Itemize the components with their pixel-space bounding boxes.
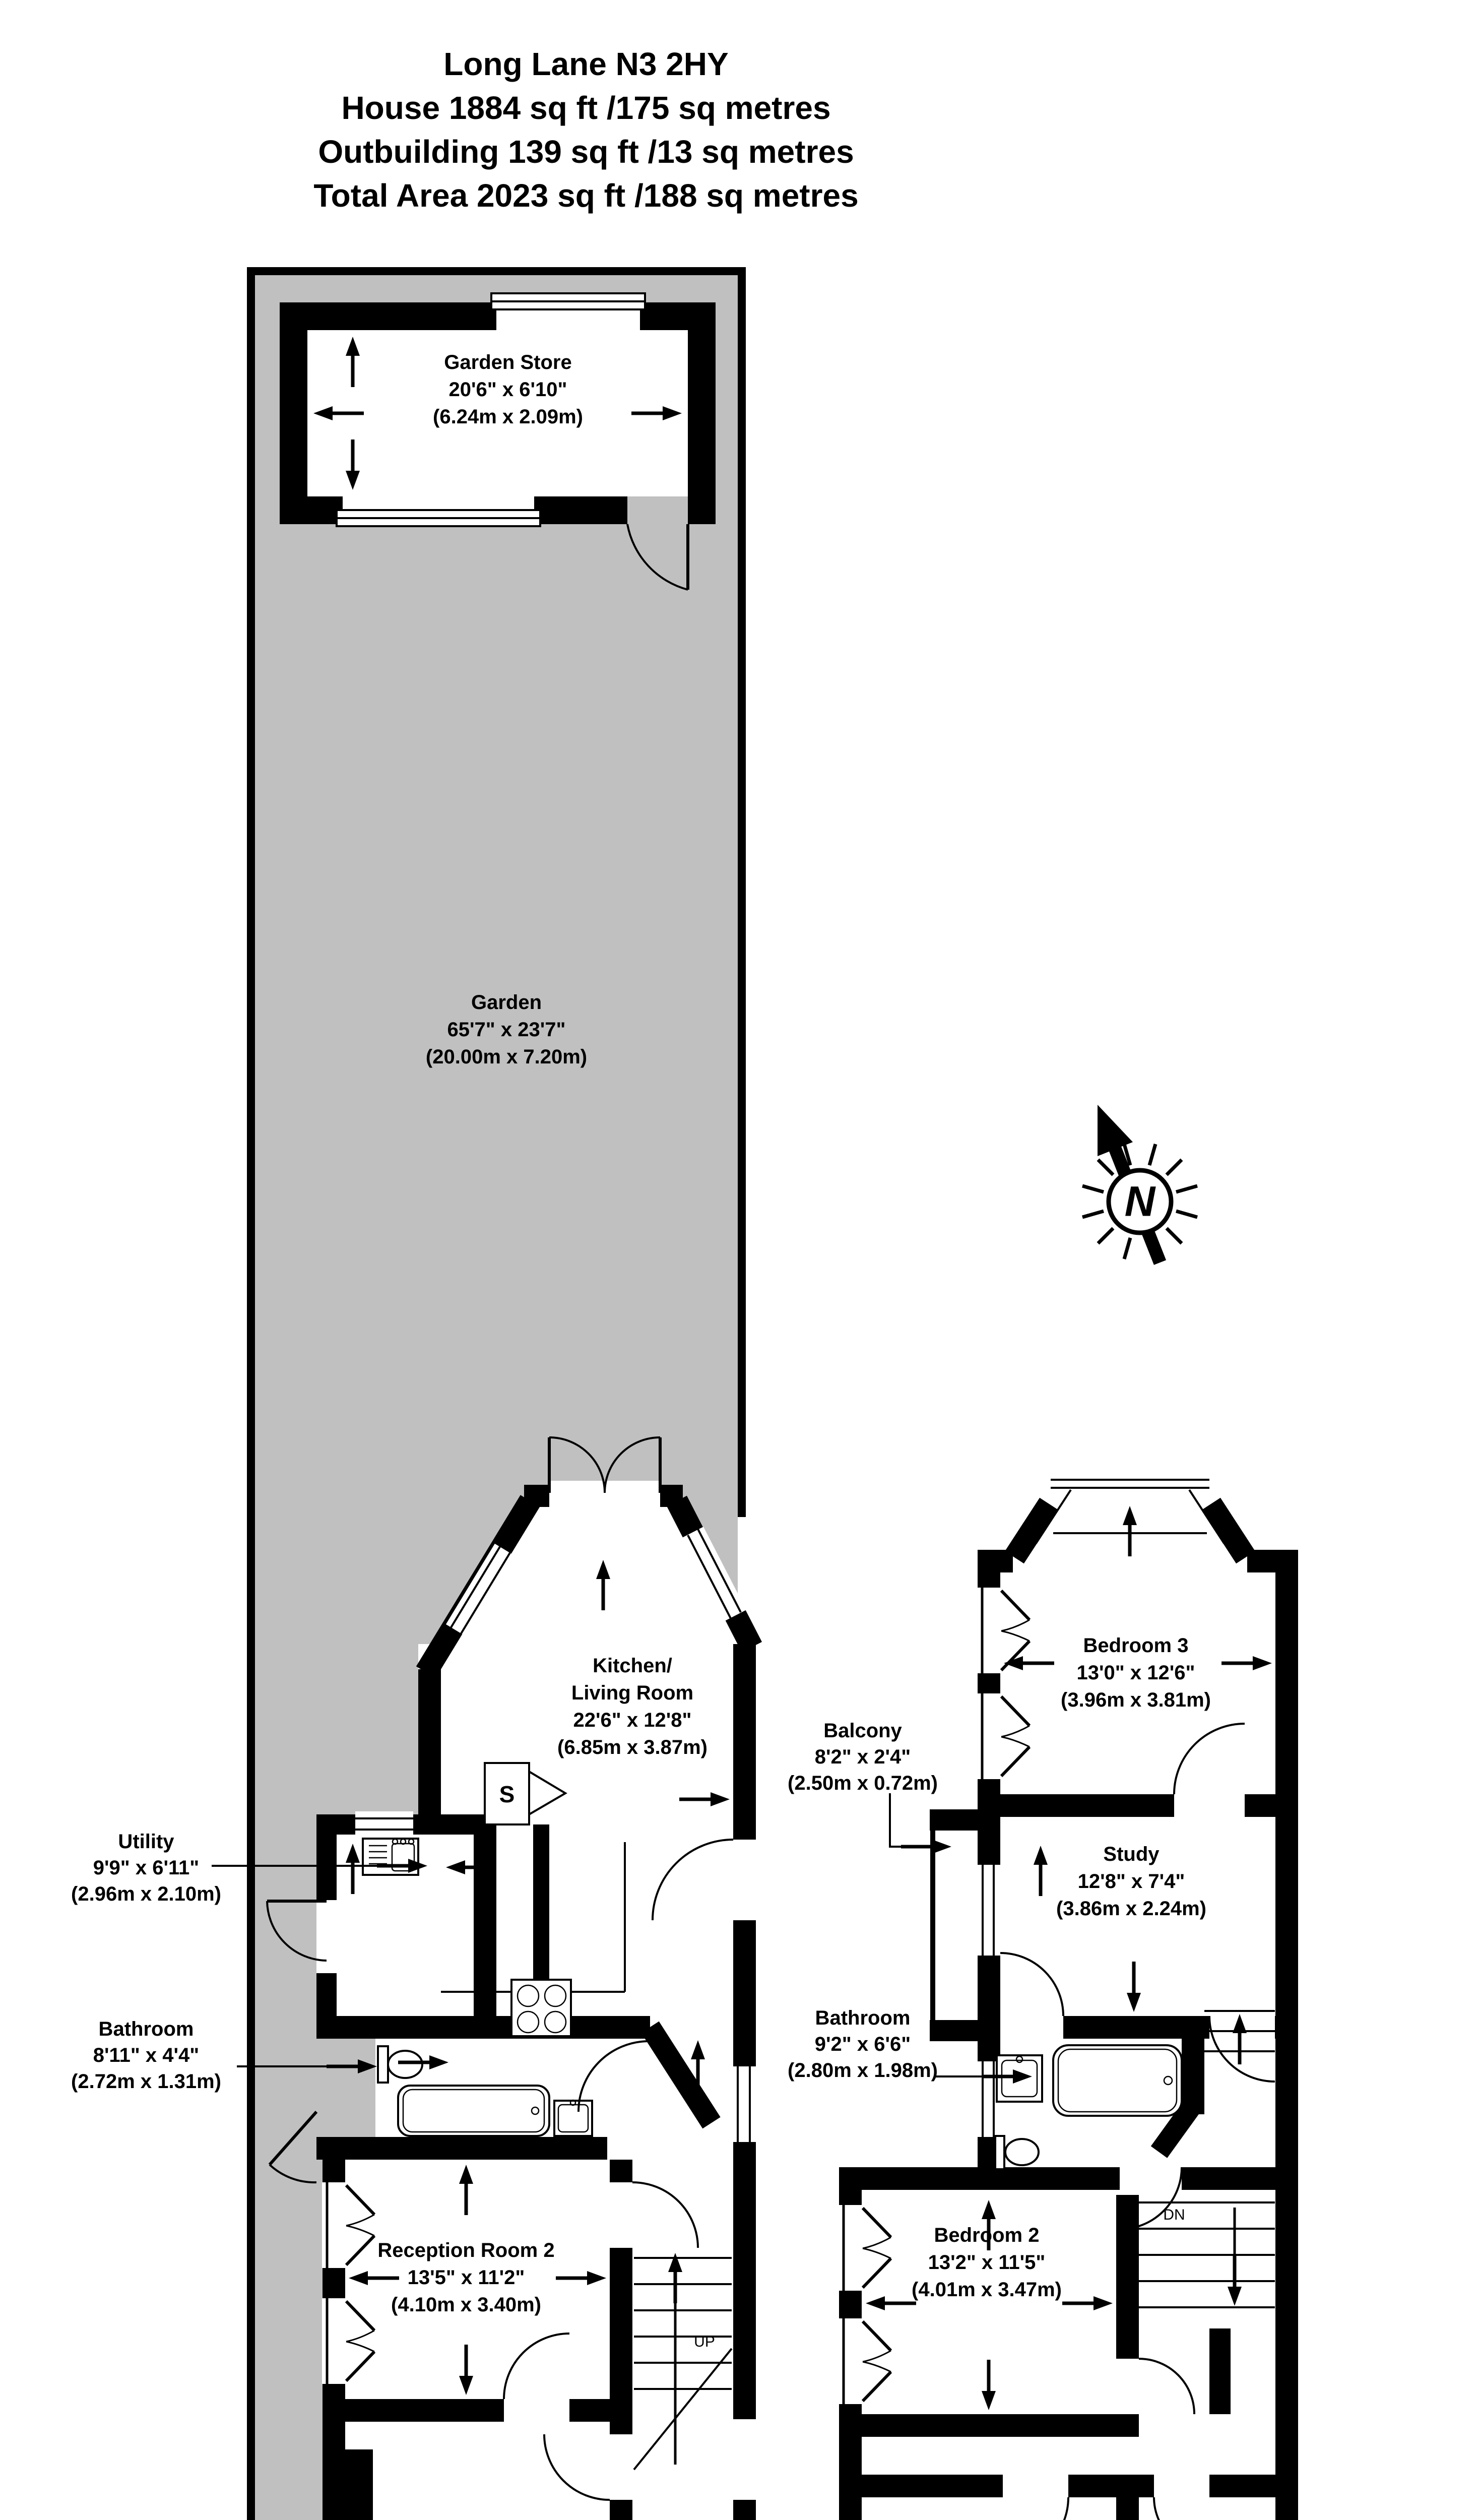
store-cupboard-label: S [499, 1781, 515, 1808]
title-total-area: Total Area 2023 sq ft /188 sq metres [313, 174, 858, 218]
compass-north-label: N [1125, 1177, 1155, 1226]
room-label-garden-store: Garden Store 20'6" x 6'10" (6.24m x 2.09… [433, 349, 583, 430]
stairs-up-label: UP [694, 2334, 715, 2351]
stairs-down-label: DN [1163, 2207, 1185, 2224]
floorplan-drawing [0, 0, 1479, 2520]
title-house-area: House 1884 sq ft /175 sq metres [313, 86, 858, 130]
title-outbuilding-area: Outbuilding 139 sq ft /13 sq metres [313, 130, 858, 174]
room-label-bedroom-2: Bedroom 2 13'2" x 11'5" (4.01m x 3.47m) [912, 2222, 1062, 2303]
room-label-reception-2: Reception Room 2 13'5" x 11'2" (4.10m x … [377, 2237, 554, 2318]
room-label-ff-bathroom: Bathroom 9'2" x 6'6" (2.80m x 1.98m) [788, 2005, 938, 2084]
room-label-utility: Utility 9'9" x 6'11" (2.96m x 2.10m) [71, 1829, 221, 1907]
floorplan-page: Long Lane N3 2HY House 1884 sq ft /175 s… [0, 0, 1479, 2520]
room-label-kitchen-living: Kitchen/ Living Room 22'6" x 12'8" (6.85… [557, 1652, 708, 1761]
room-label-gf-bathroom: Bathroom 8'11" x 4'4" (2.72m x 1.31m) [71, 2016, 221, 2095]
title-address: Long Lane N3 2HY [313, 42, 858, 86]
room-label-balcony: Balcony 8'2" x 2'4" (2.50m x 0.72m) [788, 1718, 938, 1796]
room-label-bedroom-1: Bedroom 1 17'3" x 13'3" (5.26m x 4.05m) [912, 2515, 1062, 2520]
room-label-study: Study 12'8" x 7'4" (3.86m x 2.24m) [1056, 1841, 1206, 1922]
plan-title: Long Lane N3 2HY House 1884 sq ft /175 s… [313, 42, 858, 218]
room-label-garden: Garden 65'7" x 23'7" (20.00m x 7.20m) [426, 989, 587, 1070]
room-label-bedroom-3: Bedroom 3 13'0" x 12'6" (3.96m x 3.81m) [1061, 1632, 1211, 1714]
